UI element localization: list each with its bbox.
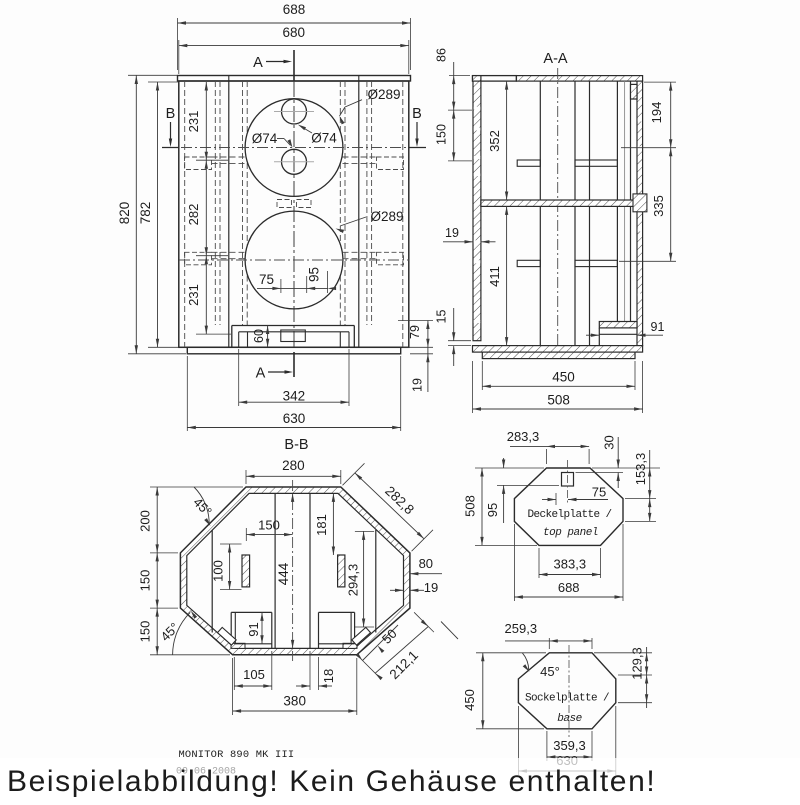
svg-text:79: 79 [408, 325, 422, 339]
svg-text:91: 91 [651, 320, 665, 334]
svg-text:91: 91 [246, 622, 261, 636]
svg-text:153,3: 153,3 [633, 453, 648, 486]
svg-text:15: 15 [435, 310, 449, 324]
svg-text:200: 200 [138, 510, 153, 532]
svg-text:383,3: 383,3 [554, 557, 587, 572]
svg-text:444: 444 [276, 562, 291, 585]
svg-text:base: base [557, 713, 581, 725]
svg-text:294,3: 294,3 [346, 564, 361, 597]
svg-text:18: 18 [321, 669, 336, 683]
svg-text:30: 30 [602, 435, 617, 449]
svg-text:508: 508 [547, 393, 570, 408]
svg-text:B-B: B-B [284, 437, 308, 453]
svg-text:Deckelplatte /: Deckelplatte / [527, 509, 611, 521]
svg-text:top panel: top panel [543, 527, 598, 539]
svg-text:680: 680 [283, 25, 306, 40]
svg-text:450: 450 [462, 689, 477, 711]
svg-text:150: 150 [258, 518, 280, 533]
svg-text:19: 19 [424, 580, 438, 595]
svg-text:Sockelplatte /: Sockelplatte / [525, 693, 609, 705]
svg-text:80: 80 [419, 556, 433, 571]
svg-text:19: 19 [411, 378, 425, 392]
svg-text:380: 380 [283, 694, 306, 709]
svg-text:411: 411 [487, 266, 502, 287]
svg-text:782: 782 [138, 202, 153, 225]
svg-text:B: B [412, 106, 422, 122]
svg-text:194: 194 [649, 102, 664, 124]
svg-text:283,3: 283,3 [507, 429, 540, 444]
svg-text:A: A [256, 366, 266, 382]
svg-text:Ø74: Ø74 [252, 131, 278, 146]
svg-text:B: B [166, 106, 176, 122]
svg-text:95: 95 [485, 503, 500, 517]
svg-text:820: 820 [117, 202, 132, 225]
svg-text:A-A: A-A [543, 51, 568, 67]
svg-text:Beispielabbildung! Kein Gehäus: Beispielabbildung! Kein Gehäuse enthalte… [7, 765, 656, 798]
svg-text:231: 231 [186, 111, 201, 133]
svg-text:45°: 45° [540, 664, 560, 679]
svg-text:181: 181 [314, 514, 329, 536]
svg-text:342: 342 [283, 388, 306, 403]
svg-text:86: 86 [435, 48, 449, 62]
svg-text:282: 282 [186, 204, 201, 226]
svg-text:150: 150 [138, 621, 153, 643]
svg-text:259,3: 259,3 [505, 621, 538, 636]
svg-text:450: 450 [552, 370, 575, 385]
svg-text:Ø289: Ø289 [370, 209, 403, 224]
svg-text:630: 630 [283, 411, 306, 426]
svg-text:95: 95 [307, 267, 322, 282]
svg-text:150: 150 [138, 570, 153, 592]
svg-text:60: 60 [252, 329, 266, 343]
svg-text:280: 280 [282, 458, 305, 473]
svg-text:Ø74: Ø74 [311, 131, 337, 146]
svg-text:Ø289: Ø289 [367, 87, 400, 102]
svg-text:688: 688 [558, 580, 580, 595]
svg-text:75: 75 [592, 485, 606, 500]
svg-text:335: 335 [651, 195, 666, 217]
svg-text:352: 352 [487, 130, 502, 152]
svg-text:105: 105 [243, 667, 265, 682]
svg-text:508: 508 [463, 495, 478, 517]
svg-text:359,3: 359,3 [553, 738, 586, 753]
svg-text:688: 688 [283, 2, 306, 17]
svg-text:19: 19 [445, 226, 459, 240]
svg-text:A: A [253, 55, 263, 71]
svg-text:75: 75 [259, 272, 274, 287]
svg-text:129,3: 129,3 [630, 647, 645, 680]
svg-text:100: 100 [211, 560, 226, 582]
svg-text:150: 150 [435, 124, 449, 145]
svg-text:231: 231 [186, 284, 201, 306]
